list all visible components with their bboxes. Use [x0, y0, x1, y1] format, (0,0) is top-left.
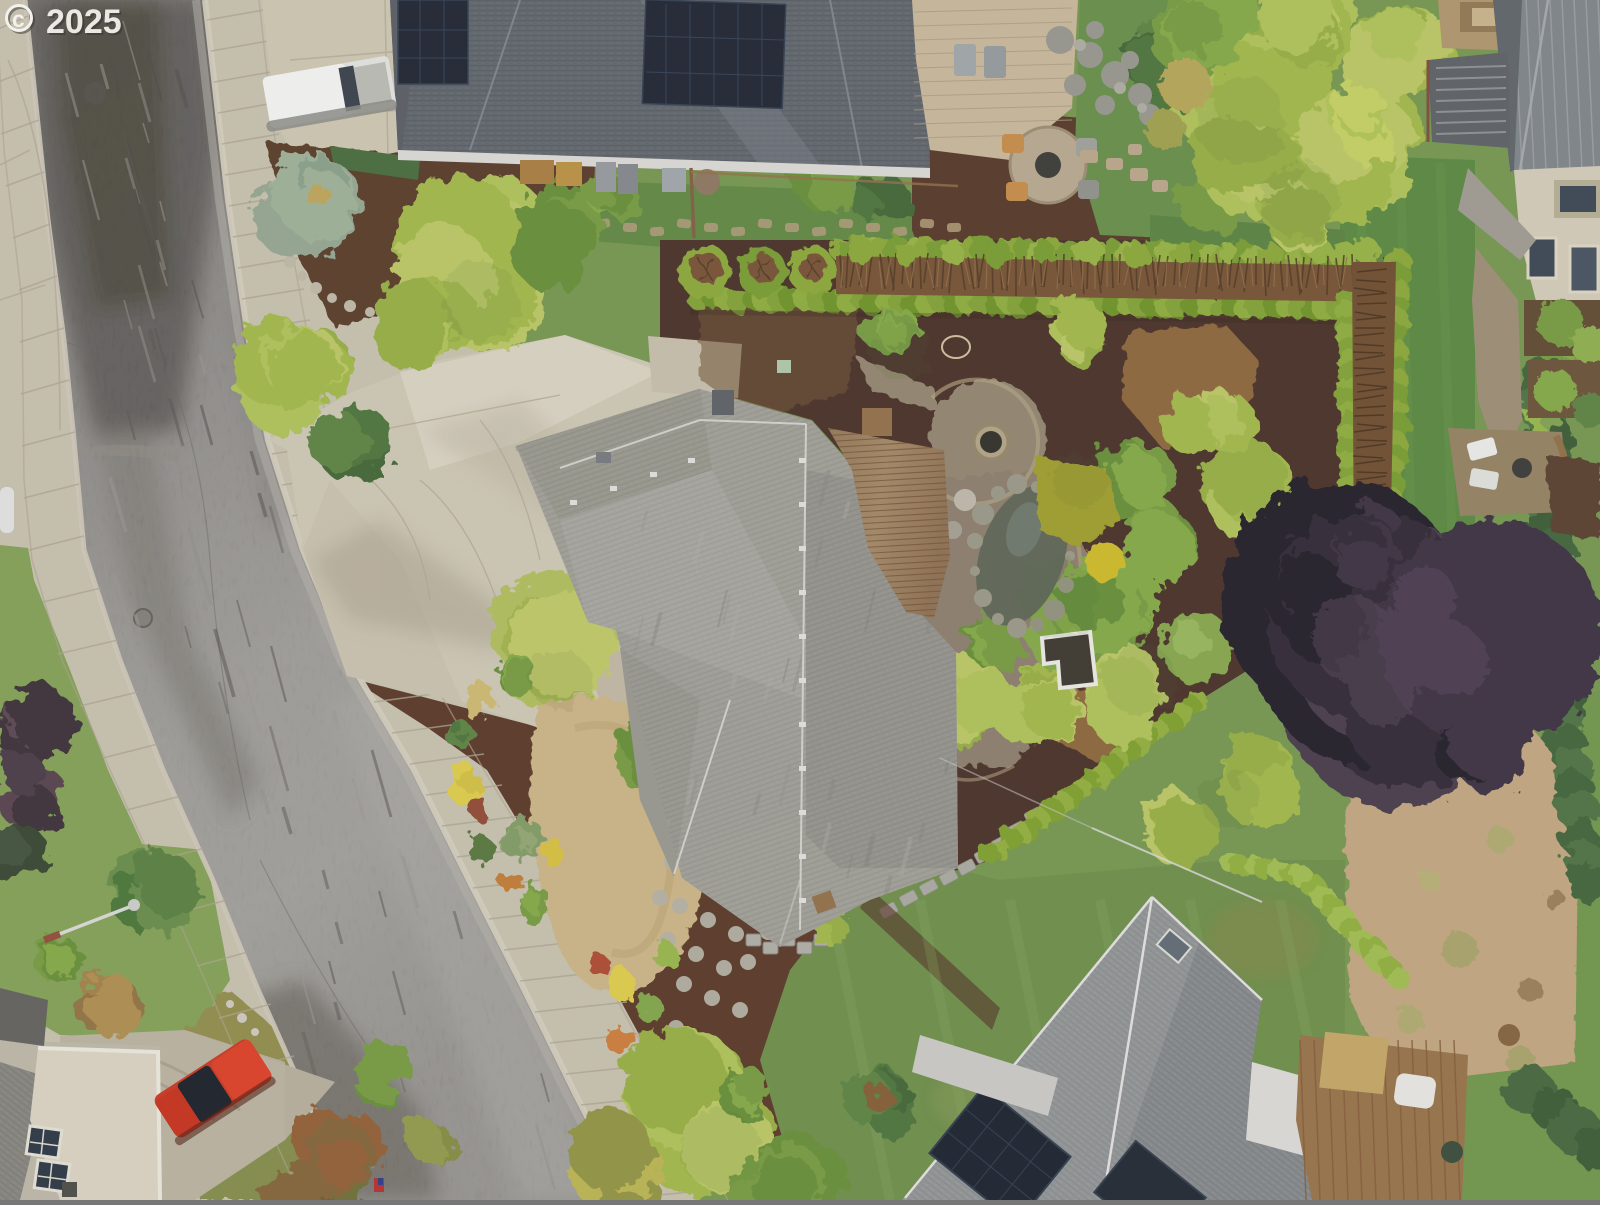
svg-text:c: c — [12, 6, 25, 32]
svg-text:2025: 2025 — [46, 3, 122, 41]
